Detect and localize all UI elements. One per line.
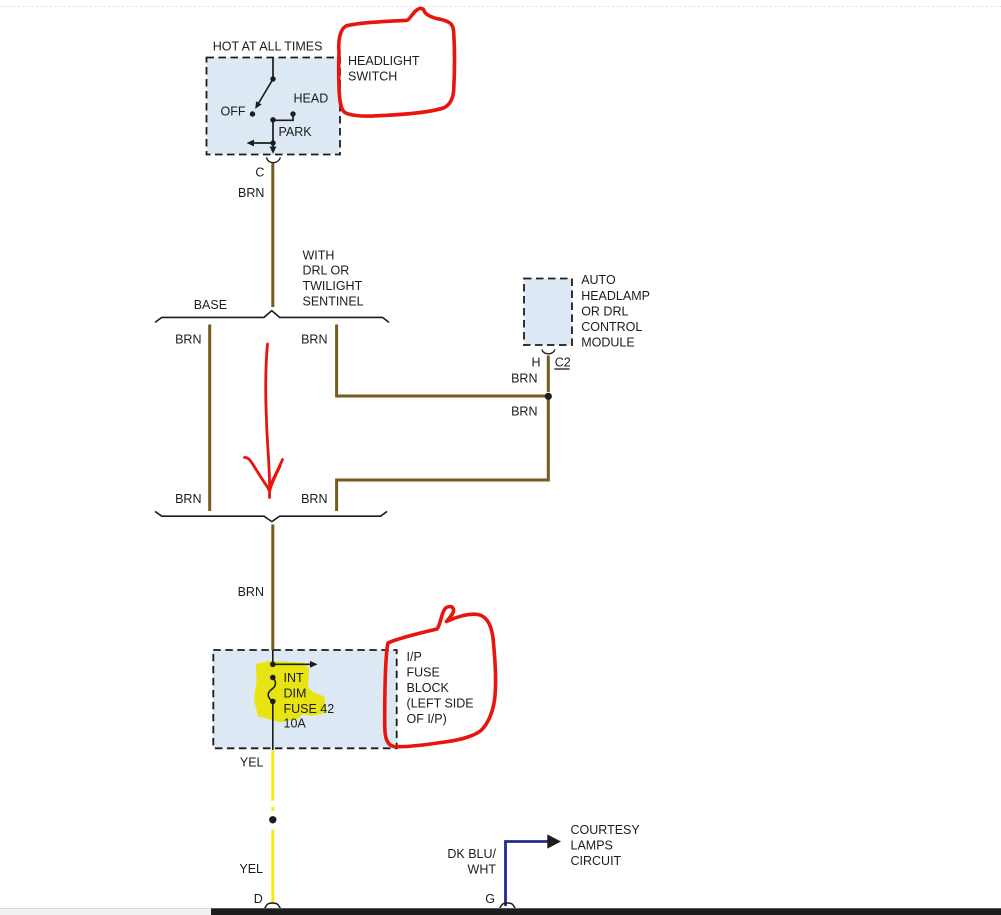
svg-text:CONTROL: CONTROL xyxy=(581,320,642,334)
svg-text:DRL OR: DRL OR xyxy=(303,264,350,278)
svg-text:LAMPS: LAMPS xyxy=(571,839,613,853)
svg-text:BRN: BRN xyxy=(238,186,264,200)
svg-text:HOT AT ALL TIMES: HOT AT ALL TIMES xyxy=(213,39,323,53)
svg-text:FUSE 42: FUSE 42 xyxy=(284,702,335,716)
svg-text:YEL: YEL xyxy=(239,862,263,876)
svg-text:D: D xyxy=(254,892,263,906)
svg-text:OF I/P): OF I/P) xyxy=(407,712,447,726)
svg-text:OFF: OFF xyxy=(221,105,246,119)
svg-text:INT: INT xyxy=(284,671,305,685)
svg-text:BASE: BASE xyxy=(194,298,227,312)
svg-text:BLOCK: BLOCK xyxy=(407,681,450,695)
svg-text:CIRCUIT: CIRCUIT xyxy=(571,854,622,868)
svg-text:WITH: WITH xyxy=(303,248,335,262)
svg-text:H: H xyxy=(531,356,540,370)
svg-text:DK BLU/: DK BLU/ xyxy=(447,847,496,861)
svg-text:BRN: BRN xyxy=(511,405,537,419)
svg-text:MODULE: MODULE xyxy=(581,336,634,350)
svg-text:I/P: I/P xyxy=(407,650,422,664)
svg-text:(LEFT SIDE: (LEFT SIDE xyxy=(407,697,474,711)
svg-text:HEADLAMP: HEADLAMP xyxy=(581,289,650,303)
svg-text:10A: 10A xyxy=(284,717,307,731)
svg-text:HEADLIGHT: HEADLIGHT xyxy=(348,54,420,68)
svg-text:BRN: BRN xyxy=(175,492,201,506)
svg-text:COURTESY: COURTESY xyxy=(571,823,641,837)
svg-text:WHT: WHT xyxy=(468,863,497,877)
svg-text:BRN: BRN xyxy=(301,492,327,506)
svg-text:HEAD: HEAD xyxy=(294,92,329,106)
svg-text:BRN: BRN xyxy=(238,585,264,599)
svg-text:AUTO: AUTO xyxy=(581,273,616,287)
svg-text:G: G xyxy=(485,892,495,906)
svg-text:BRN: BRN xyxy=(301,333,327,347)
svg-text:TWILIGHT: TWILIGHT xyxy=(303,279,363,293)
svg-text:FUSE: FUSE xyxy=(407,666,440,680)
svg-text:C: C xyxy=(255,166,264,180)
svg-text:PARK: PARK xyxy=(279,125,313,139)
svg-text:YEL: YEL xyxy=(240,755,264,769)
svg-text:SENTINEL: SENTINEL xyxy=(303,295,364,309)
svg-text:BRN: BRN xyxy=(175,333,201,347)
svg-text:DIM: DIM xyxy=(284,687,307,701)
svg-text:SWITCH: SWITCH xyxy=(348,69,397,83)
svg-text:OR DRL: OR DRL xyxy=(581,304,628,318)
svg-text:BRN: BRN xyxy=(511,372,537,386)
svg-text:C2: C2 xyxy=(555,356,571,370)
